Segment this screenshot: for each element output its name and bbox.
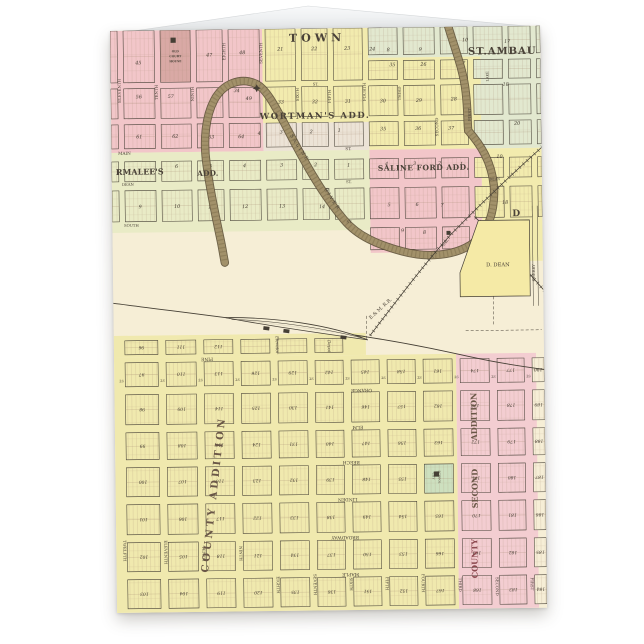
svg-text:NINTH: NINTH (190, 86, 195, 101)
svg-text:119: 119 (217, 590, 226, 595)
svg-text:135: 135 (291, 589, 300, 594)
svg-text:158: 158 (397, 368, 406, 373)
svg-text:137: 137 (327, 551, 336, 556)
svg-text:SIXTH: SIXTH (349, 577, 354, 591)
svg-text:24: 24 (368, 46, 375, 52)
svg-text:ST.: ST. (271, 377, 276, 381)
svg-text:183: 183 (509, 586, 518, 591)
svg-text:121: 121 (254, 552, 262, 557)
svg-text:ELM: ELM (352, 424, 363, 430)
svg-text:149: 149 (363, 513, 372, 518)
svg-text:SECOND: SECOND (434, 118, 439, 137)
svg-text:8: 8 (387, 47, 390, 53)
svg-text:139: 139 (326, 476, 335, 481)
svg-text:COUNTY: COUNTY (469, 539, 479, 579)
svg-text:SCHOOL: SCHOOL (437, 471, 441, 484)
mill-symbol (446, 231, 450, 235)
svg-text:101: 101 (139, 516, 147, 521)
svg-text:THIRD: THIRD (397, 86, 402, 100)
svg-text:32: 32 (312, 99, 318, 105)
svg-text:ADDITION: ADDITION (468, 393, 479, 442)
svg-text:ST.: ST. (308, 377, 313, 381)
svg-text:BEECH: BEECH (343, 459, 360, 465)
svg-text:ST.: ST. (313, 81, 319, 86)
svg-text:13: 13 (279, 204, 285, 210)
svg-text:DEAN: DEAN (122, 182, 135, 187)
svg-text:35: 35 (380, 126, 386, 132)
svg-text:99: 99 (140, 443, 146, 448)
svg-text:ST.: ST. (380, 376, 385, 380)
svg-text:ST.: ST. (197, 378, 202, 382)
svg-text:SECOND: SECOND (495, 577, 500, 596)
svg-text:56: 56 (136, 94, 142, 100)
svg-text:D. DEAN: D. DEAN (486, 262, 510, 268)
svg-text:9: 9 (139, 204, 142, 210)
svg-text:COURT: COURT (169, 54, 182, 58)
svg-text:167: 167 (436, 587, 445, 592)
svg-text:64: 64 (238, 134, 244, 140)
svg-text:SOUTH: SOUTH (124, 223, 140, 228)
svg-text:9: 9 (419, 47, 422, 53)
svg-text:BROADWAY: BROADWAY (330, 534, 359, 540)
svg-text:105: 105 (179, 553, 188, 558)
svg-text:18: 18 (502, 200, 508, 206)
svg-text:97: 97 (139, 371, 145, 376)
svg-text:136: 136 (327, 588, 336, 593)
svg-text:6: 6 (416, 202, 419, 208)
svg-text:98: 98 (139, 406, 145, 411)
svg-text:ST.: ST. (346, 179, 352, 184)
antique-plat-map: OLDCOURTHOUSE961111129711011312612914214… (110, 26, 547, 613)
svg-text:10: 10 (496, 154, 502, 160)
svg-text:36: 36 (415, 126, 421, 132)
svg-text:45: 45 (134, 60, 141, 66)
svg-text:OLD: OLD (172, 49, 180, 53)
svg-text:14: 14 (319, 204, 325, 210)
svg-text:ST.: ST. (234, 377, 239, 381)
svg-text:ST.: ST. (490, 374, 495, 378)
svg-text:106: 106 (179, 516, 188, 521)
svg-text:8: 8 (423, 230, 426, 236)
svg-text:141: 141 (325, 404, 333, 409)
svg-text:104: 104 (179, 590, 188, 595)
svg-text:187: 187 (535, 474, 544, 479)
svg-text:26: 26 (419, 62, 426, 68)
svg-text:LAKE: LAKE (486, 71, 490, 82)
svg-text:178: 178 (507, 402, 516, 407)
svg-text:LINDEN: LINDEN (338, 496, 358, 502)
svg-text:188: 188 (535, 438, 544, 443)
svg-text:21: 21 (276, 47, 283, 53)
svg-text:162: 162 (434, 402, 443, 407)
svg-text:184: 184 (536, 586, 545, 591)
svg-text:10: 10 (174, 204, 180, 210)
svg-text:ST.: ST. (416, 375, 421, 379)
svg-text:177: 177 (506, 367, 515, 372)
svg-text:129: 129 (288, 369, 297, 374)
svg-text:152: 152 (399, 587, 408, 592)
svg-text:SECOND: SECOND (469, 469, 479, 509)
svg-text:FIFTH: FIFTH (327, 89, 332, 103)
svg-text:SEVENTH: SEVENTH (258, 42, 263, 64)
svg-text:RMALEE'S: RMALEE'S (116, 166, 164, 177)
svg-text:163: 163 (434, 439, 443, 444)
svg-text:150: 150 (363, 551, 372, 556)
svg-text:125: 125 (252, 405, 261, 410)
product-photo-scene: OLDCOURTHOUSE961111129711011312612914214… (0, 0, 644, 644)
svg-text:DEAN: DEAN (490, 177, 501, 181)
svg-text:174: 174 (470, 367, 479, 372)
svg-text:29: 29 (415, 98, 422, 104)
svg-text:ST.: ST. (525, 374, 530, 378)
svg-text:113: 113 (214, 370, 223, 375)
svg-text:PINE: PINE (201, 356, 213, 362)
svg-text:118: 118 (216, 553, 225, 558)
svg-text:154: 154 (399, 513, 408, 518)
svg-text:185: 185 (536, 549, 545, 554)
svg-text:130: 130 (289, 404, 298, 409)
svg-text:47: 47 (205, 52, 213, 58)
svg-text:ST.: ST. (344, 376, 349, 380)
svg-text:108: 108 (178, 442, 187, 447)
svg-text:37: 37 (448, 125, 455, 131)
svg-text:EIGHTH: EIGHTH (221, 42, 226, 60)
greeting-card-front: OLDCOURTHOUSE961111129711011312612914214… (110, 26, 547, 613)
svg-text:TENTH: TENTH (154, 84, 159, 100)
svg-text:17: 17 (504, 39, 511, 45)
svg-text:22: 22 (310, 46, 317, 52)
svg-text:132: 132 (290, 477, 299, 482)
svg-text:D: D (512, 209, 520, 219)
svg-text:165: 165 (435, 512, 444, 517)
svg-text:5: 5 (388, 202, 391, 208)
svg-text:SEVENTH: SEVENTH (313, 574, 318, 596)
svg-text:186: 186 (536, 511, 545, 516)
svg-text:ST.AMBAU: ST.AMBAU (468, 46, 537, 58)
svg-text:2: 2 (309, 129, 313, 135)
svg-text:NINTH: NINTH (238, 546, 243, 561)
svg-text:30: 30 (380, 98, 386, 104)
svg-text:FOURTH: FOURTH (362, 82, 367, 101)
svg-text:MAIN: MAIN (118, 151, 131, 156)
svg-text:123: 123 (253, 477, 262, 482)
svg-text:FIRST: FIRST (530, 577, 535, 590)
svg-text:SIXTH: SIXTH (295, 88, 300, 102)
svg-text:ST.: ST. (345, 146, 351, 151)
svg-text:112: 112 (214, 343, 223, 348)
svg-text:TWELFTH: TWELFTH (122, 540, 127, 562)
svg-text:180: 180 (508, 474, 517, 479)
svg-text:145: 145 (361, 368, 370, 373)
svg-text:62: 62 (172, 134, 178, 140)
svg-text:182: 182 (508, 549, 517, 554)
svg-text:HOUSE: HOUSE (169, 59, 182, 63)
svg-text:TOWN: TOWN (289, 31, 345, 45)
svg-text:ST.: ST. (159, 378, 164, 382)
svg-text:ST.: ST. (346, 219, 352, 224)
svg-text:122: 122 (253, 515, 262, 520)
svg-text:157: 157 (397, 403, 406, 408)
svg-text:124: 124 (252, 441, 261, 446)
svg-text:142: 142 (325, 369, 334, 374)
svg-text:179: 179 (507, 438, 516, 443)
svg-text:100: 100 (139, 479, 148, 484)
svg-text:ST.: ST. (453, 375, 458, 379)
svg-text:Depot: Depot (327, 339, 332, 353)
svg-text:3: 3 (280, 130, 283, 136)
svg-text:140: 140 (326, 440, 335, 445)
svg-text:96: 96 (138, 344, 144, 349)
svg-text:107: 107 (178, 478, 187, 483)
svg-text:20: 20 (513, 121, 520, 127)
svg-text:18: 18 (503, 82, 509, 88)
svg-text:49: 49 (245, 96, 252, 102)
svg-text:161: 161 (433, 367, 441, 372)
svg-text:111: 111 (177, 344, 185, 349)
svg-text:EIGHTH: EIGHTH (276, 576, 281, 594)
svg-text:120: 120 (254, 589, 263, 594)
svg-text:35: 35 (389, 62, 395, 68)
svg-text:34: 34 (234, 88, 240, 94)
svg-text:110: 110 (177, 371, 186, 376)
svg-text:148: 148 (362, 476, 371, 481)
svg-text:FIRST: FIRST (467, 108, 472, 121)
svg-text:4: 4 (257, 131, 261, 137)
svg-text:CHERRY: CHERRY (531, 264, 536, 282)
svg-text:133: 133 (290, 514, 299, 519)
svg-text:ELEVENTH: ELEVENTH (163, 540, 168, 565)
svg-text:61: 61 (136, 134, 142, 140)
svg-text:4: 4 (242, 163, 246, 169)
svg-text:181: 181 (508, 512, 516, 517)
svg-text:THIRD: THIRD (458, 578, 463, 592)
svg-text:151: 151 (364, 588, 372, 593)
svg-text:134: 134 (290, 552, 299, 557)
svg-text:ORANGE: ORANGE (351, 387, 372, 393)
svg-text:102: 102 (139, 554, 148, 559)
svg-text:147: 147 (362, 440, 371, 445)
svg-text:146: 146 (361, 403, 370, 408)
svg-text:ST.: ST. (118, 379, 123, 383)
svg-text:28: 28 (450, 96, 457, 102)
svg-text:138: 138 (327, 514, 336, 519)
svg-text:1: 1 (347, 163, 350, 169)
svg-text:2: 2 (313, 162, 317, 168)
svg-text:168: 168 (473, 587, 482, 592)
svg-text:SALINE FORD ADD.: SALINE FORD ADD. (378, 163, 470, 173)
svg-text:10: 10 (462, 37, 468, 43)
svg-text:31: 31 (345, 99, 351, 105)
svg-text:1: 1 (338, 128, 341, 134)
svg-text:CITY: CITY (431, 473, 435, 480)
svg-text:131: 131 (289, 441, 297, 446)
svg-text:155: 155 (398, 475, 407, 480)
svg-text:57: 57 (168, 94, 175, 100)
svg-text:166: 166 (435, 550, 444, 555)
svg-text:3: 3 (280, 163, 283, 169)
svg-text:9: 9 (401, 228, 404, 234)
svg-text:114: 114 (215, 405, 224, 410)
svg-text:153: 153 (399, 550, 408, 555)
svg-text:6: 6 (175, 164, 178, 170)
svg-text:MAPLE: MAPLE (342, 571, 359, 577)
svg-text:Elevator: Elevator (275, 335, 280, 355)
svg-text:12: 12 (242, 204, 248, 210)
svg-text:WORTMAN'S ADD.: WORTMAN'S ADD. (259, 111, 371, 122)
svg-text:170: 170 (472, 512, 481, 517)
svg-text:189: 189 (534, 401, 543, 406)
svg-text:126: 126 (251, 370, 260, 375)
svg-text:23: 23 (343, 46, 350, 52)
svg-text:48: 48 (238, 50, 245, 56)
svg-text:FIFTH: FIFTH (385, 577, 390, 591)
svg-text:FOURTH: FOURTH (421, 574, 426, 593)
svg-text:156: 156 (398, 439, 407, 444)
svg-text:109: 109 (177, 406, 186, 411)
svg-text:103: 103 (140, 591, 149, 596)
svg-text:ELEVENTH: ELEVENTH (117, 78, 122, 103)
svg-text:ADD.: ADD. (196, 169, 218, 178)
